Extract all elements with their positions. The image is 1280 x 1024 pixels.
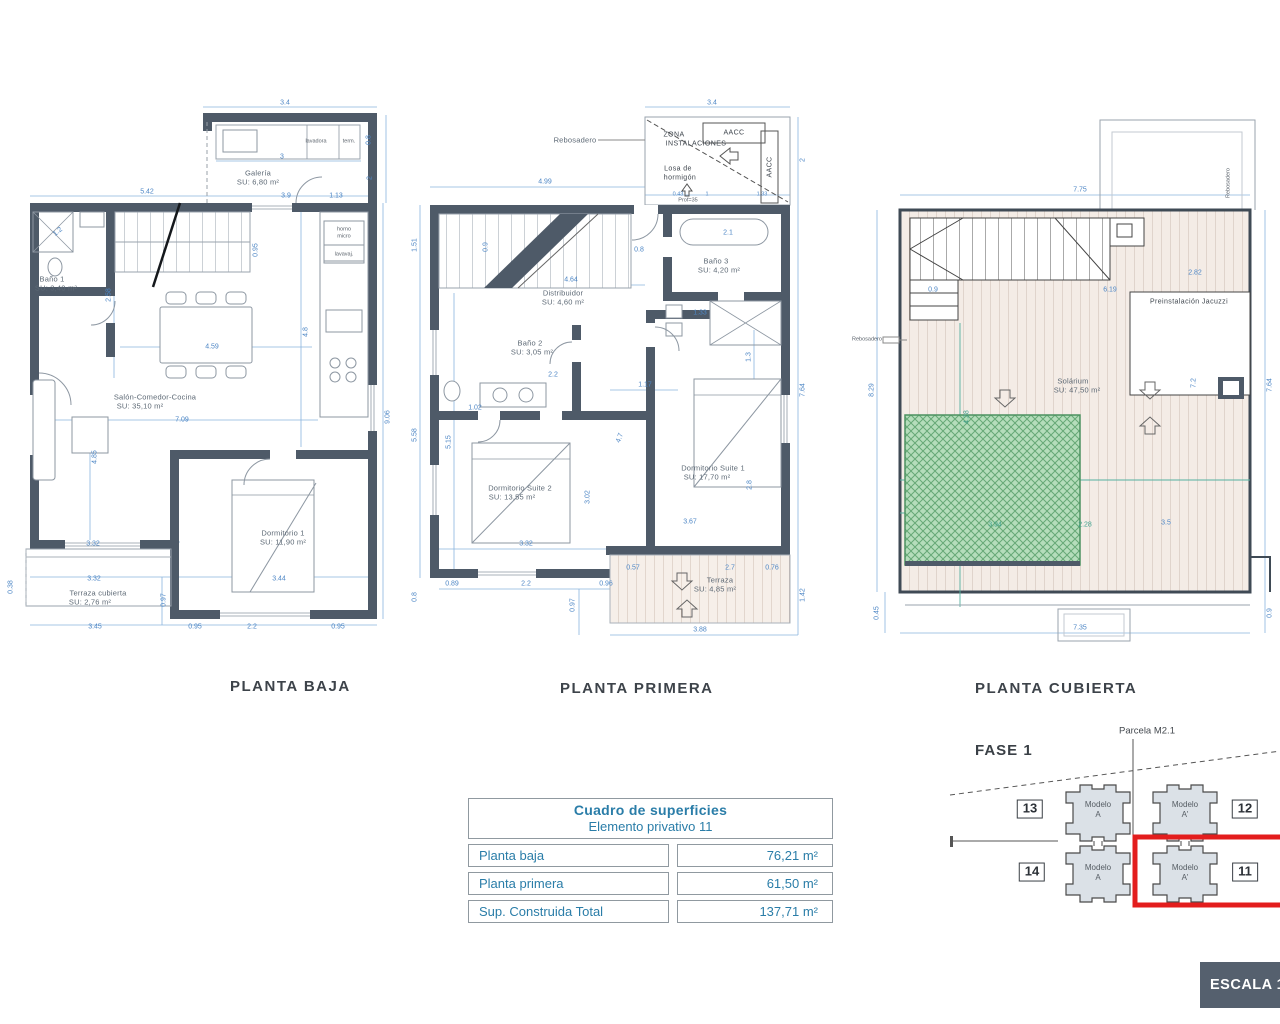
row-value: 76,21 m² — [677, 844, 833, 867]
dim-label: 1.33 — [757, 192, 768, 198]
room-label: Rebosadero — [1226, 168, 1232, 198]
room-label: Baño 3 — [704, 257, 729, 265]
model-variant: A — [1095, 810, 1100, 819]
room-label: ZONA — [663, 132, 684, 139]
room-label: Baño 2 — [518, 339, 543, 347]
room-label: horno — [337, 227, 351, 233]
dim-label: 0.9 — [483, 242, 490, 252]
room-label: Prof=35 — [678, 198, 697, 204]
dim-label: 3.44 — [272, 576, 286, 583]
dim-label: 1.17 — [638, 382, 652, 389]
scale-label: ESCALA 1/7 — [1210, 977, 1280, 993]
room-label: Dormitorio Suite 1 — [681, 464, 745, 472]
dim-label: 0.8 — [634, 247, 644, 254]
dim-label: 0.45 — [874, 606, 881, 620]
room-label: SU: 3,05 m² — [511, 348, 553, 356]
dim-label: 0.95 — [253, 243, 260, 257]
room-label: Rebosadero — [852, 337, 882, 343]
room-label: Dormitorio Suite 2 — [488, 484, 552, 492]
row-label: Sup. Construida Total — [468, 900, 669, 923]
scale-badge: ESCALA 1/7 — [1200, 962, 1280, 1008]
dim-label: 3.02 — [585, 490, 592, 504]
unit-12-badge: 12 — [1232, 800, 1258, 819]
dim-label: 3.32 — [519, 541, 533, 548]
room-label: Terraza cubierta — [70, 589, 127, 597]
room-label: SU: 35,10 m² — [117, 402, 164, 410]
model-name: Modelo — [1085, 800, 1111, 809]
dim-label: 7.09 — [175, 417, 189, 424]
dim-label: 0.8 — [412, 592, 419, 602]
dim-label: 0.96 — [599, 581, 613, 588]
dim-label: 3.94 — [988, 522, 1002, 529]
table-row: Planta baja 76,21 m² — [468, 844, 833, 867]
model-name: Modelo — [1172, 863, 1198, 872]
planta-baja-plan: 3.40.835.423.91.1321.22.580.954.84.597.0… — [20, 95, 400, 680]
room-label: SU: 17,70 m² — [684, 473, 731, 481]
dim-label: 2.82 — [1188, 270, 1202, 277]
dim-label: 2.1 — [723, 230, 733, 237]
table-row: Sup. Construida Total 137,71 m² — [468, 900, 833, 923]
parcela-label: Parcela M2.1 — [1119, 726, 1175, 737]
model-variant: A' — [1182, 873, 1189, 882]
room-label: SU: 47,50 m² — [1054, 386, 1101, 394]
room-label: term. — [343, 139, 356, 145]
room-label: Losa de — [664, 166, 692, 173]
dim-label: 0.9 — [1267, 608, 1274, 618]
row-label: Planta primera — [468, 872, 669, 895]
dim-label: 0.76 — [765, 565, 779, 572]
dim-label: 0.97 — [570, 598, 577, 612]
dim-label: 5.58 — [412, 428, 419, 442]
room-label: Baño 1 — [40, 275, 65, 283]
surface-table-header: Cuadro de superficies Elemento privativo… — [468, 798, 833, 839]
fase-label: FASE 1 — [975, 742, 1033, 759]
dim-label: 2 — [367, 176, 374, 180]
planta-primera-drawing — [420, 95, 820, 680]
dim-label: 5.42 — [140, 189, 154, 196]
dim-label: 2.7 — [725, 565, 735, 572]
room-label: Dormitorio 1 — [261, 529, 304, 537]
dim-label: 2.28 — [1078, 522, 1092, 529]
room-label: Solárium — [1057, 377, 1088, 385]
drawing-canvas: 3.40.835.423.91.1321.22.580.954.84.597.0… — [0, 0, 1280, 1024]
model-variant: A' — [1182, 810, 1189, 819]
room-label: SU: 4,60 m² — [542, 298, 584, 306]
unit-13-badge: 13 — [1017, 800, 1043, 819]
planta-cubierta-plan: 7.75Rebosadero2.826.190.9Preinstalación … — [855, 95, 1275, 680]
dim-label: 2.2 — [247, 624, 257, 631]
model-name: Modelo — [1172, 800, 1198, 809]
dim-label: 8.29 — [869, 383, 876, 397]
room-label: INSTALACIONES — [666, 141, 727, 148]
dim-label: 0.9 — [928, 287, 938, 294]
dim-label: 2.8 — [747, 480, 754, 490]
dim-label: 3 — [280, 154, 284, 161]
surface-table-subtitle: Elemento privativo 11 — [469, 819, 832, 834]
dim-label: 3.32 — [86, 541, 100, 548]
dim-label: 6.19 — [1103, 287, 1117, 294]
model-name: Modelo — [1085, 863, 1111, 872]
dim-label: 3.88 — [693, 627, 707, 634]
dim-label: 1.42 — [800, 588, 807, 602]
dim-label: 2 — [800, 158, 807, 162]
dim-label: 7.64 — [800, 383, 807, 397]
dim-label: 4.85 — [92, 450, 99, 464]
dim-label: 3.32 — [87, 576, 101, 583]
room-label: SU: 2,76 m² — [69, 598, 111, 606]
building-model-12: Modelo A' — [1172, 800, 1198, 820]
dim-label: 3.45 — [88, 624, 102, 631]
planta-cubierta-title: PLANTA CUBIERTA — [975, 680, 1137, 697]
dim-label: 4.8 — [303, 327, 310, 337]
dim-label: 0.95 — [188, 624, 202, 631]
dim-label: 7.64 — [1267, 378, 1274, 392]
room-label: SU: 13,55 m² — [489, 493, 536, 501]
room-label: SU: 4,20 m² — [698, 266, 740, 274]
dim-label: 1.51 — [412, 238, 419, 252]
room-label: SU: 6,80 m² — [237, 178, 279, 186]
room-label: micro — [337, 234, 350, 240]
room-label: Galería — [245, 169, 271, 177]
row-value: 61,50 m² — [677, 872, 833, 895]
dim-label: 4.59 — [205, 344, 219, 351]
planta-baja-title: PLANTA BAJA — [230, 678, 351, 695]
dim-label: 2.2 — [521, 581, 531, 588]
dim-label: 2.2 — [548, 372, 558, 379]
dim-label: 0.57 — [626, 565, 640, 572]
dim-label: 4.99 — [538, 179, 552, 186]
dim-label: 1.13 — [329, 193, 343, 200]
unit-11-badge: 11 — [1232, 863, 1258, 882]
building-model-13: Modelo A — [1085, 800, 1111, 820]
row-label: Planta baja — [468, 844, 669, 867]
room-label: lavadora — [305, 139, 326, 145]
dim-label: 1.33 — [693, 310, 707, 317]
dim-label: 4.64 — [564, 277, 578, 284]
dim-label: 1.3 — [746, 352, 753, 362]
dim-label: 9.06 — [385, 410, 392, 424]
dim-label: 0.38 — [8, 580, 15, 594]
planta-primera-title: PLANTA PRIMERA — [560, 680, 714, 697]
room-label: hormigón — [664, 175, 696, 182]
dim-label: 4.28 — [964, 410, 971, 424]
dim-label: 7.2 — [1191, 378, 1198, 388]
room-label: AACC — [723, 130, 744, 137]
dim-label: 5.15 — [446, 435, 453, 449]
surface-table: Cuadro de superficies Elemento privativo… — [468, 798, 833, 923]
room-label: Rebosadero — [554, 136, 597, 144]
dim-label: 1 — [705, 192, 708, 198]
building-model-11: Modelo A' — [1172, 863, 1198, 883]
room-label: SU: 3,40 m² — [35, 284, 77, 292]
dim-label: 3.4 — [707, 100, 717, 107]
planta-primera-plan: 3.44.990.4311.3321.510.90.82.14.641.331.… — [420, 95, 820, 680]
room-label: Terraza — [707, 576, 733, 584]
dim-label: 0.89 — [445, 581, 459, 588]
room-label: Salón-Comedor-Cocina — [114, 393, 196, 401]
dim-label: 7.75 — [1073, 187, 1087, 194]
table-row: Planta primera 61,50 m² — [468, 872, 833, 895]
row-value: 137,71 m² — [677, 900, 833, 923]
surface-table-title: Cuadro de superficies — [469, 802, 832, 818]
model-variant: A — [1095, 873, 1100, 882]
room-label: SU: 4,85 m² — [694, 585, 736, 593]
dim-label: 0.97 — [161, 593, 168, 607]
unit-14-badge: 14 — [1019, 863, 1045, 882]
dim-label: 0.95 — [331, 624, 345, 631]
room-label: AACC — [767, 156, 774, 177]
room-label: SU: 11,90 m² — [260, 538, 306, 546]
dim-label: 2.58 — [106, 288, 113, 302]
room-label: Distribuidor — [543, 289, 583, 297]
dim-label: 7.35 — [1073, 625, 1087, 632]
dim-label: 3.4 — [280, 100, 290, 107]
dim-label: 3.5 — [1161, 520, 1171, 527]
dim-label: 0.8 — [366, 135, 373, 145]
room-label: Preinstalación Jacuzzi — [1150, 299, 1228, 306]
dim-label: 3.67 — [683, 519, 697, 526]
room-label: lavavaj. — [335, 252, 354, 258]
building-model-14: Modelo A — [1085, 863, 1111, 883]
dim-label: 1.02 — [468, 405, 482, 412]
dim-label: 3.9 — [281, 193, 291, 200]
